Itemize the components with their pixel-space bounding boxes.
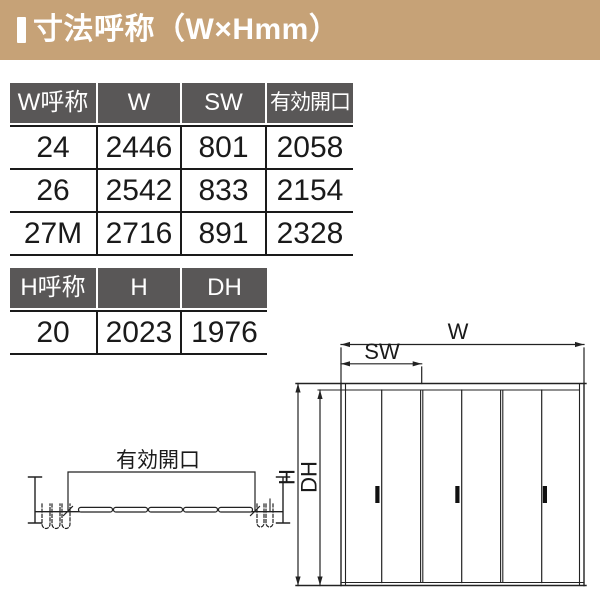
column-header: W [98, 83, 182, 123]
door-handle [375, 486, 379, 503]
table-cell: 2542 [98, 170, 182, 211]
table-row: 26 2542 833 2154 [10, 168, 353, 211]
sw-dimension-label: SW [364, 339, 400, 364]
column-header: SW [182, 83, 267, 123]
w-table-body: 24 2446 801 2058 26 2542 833 2154 27M 27… [10, 125, 353, 256]
effective-opening-label: 有効開口 [116, 449, 200, 472]
table-row: 27M 2716 891 2328 [10, 211, 353, 256]
w-dimension-label: W [448, 319, 469, 344]
panel-pair-joint [501, 390, 503, 583]
page-title: 寸法呼称（W×Hmm） [33, 0, 339, 60]
column-header: 有効開口 [267, 83, 353, 123]
panel-pair-joint [421, 390, 423, 583]
plan-view: 有効開口 [29, 449, 290, 529]
column-header: DH [182, 268, 267, 308]
folded-panels-right [257, 504, 273, 527]
elevation-view: W SW H DH [274, 319, 586, 586]
plan-panel-slats [79, 507, 253, 512]
table-cell: 2058 [267, 127, 353, 168]
table-cell: 2328 [267, 213, 353, 254]
table-cell: 27M [10, 213, 98, 254]
table-cell: 2716 [98, 213, 182, 254]
h-table-header-row: H呼称 H DH [10, 268, 267, 308]
table-cell: 801 [182, 127, 267, 168]
table-cell: 26 [10, 170, 98, 211]
spec-sheet: 寸法呼称（W×Hmm） W呼称 W SW 有効開口 24 2446 801 20… [0, 0, 600, 600]
table-cell: 891 [182, 213, 267, 254]
table-row: 24 2446 801 2058 [10, 125, 353, 168]
plan-left-jamb [29, 477, 42, 523]
table-cell: 2154 [267, 170, 353, 211]
dimension-diagram: 有効開口 W [0, 318, 600, 600]
frame-sides [341, 384, 584, 586]
door-handle [543, 486, 547, 503]
title-bar: 寸法呼称（W×Hmm） [0, 0, 600, 60]
door-handle [455, 486, 459, 503]
table-cell: 2446 [98, 127, 182, 168]
sw-dimension [341, 361, 422, 383]
dh-dimension-label: DH [296, 461, 321, 493]
table-cell: 24 [10, 127, 98, 168]
table-cell: 833 [182, 170, 267, 211]
title-marker-icon [17, 17, 26, 43]
column-header: H呼称 [10, 268, 98, 308]
w-table-header-row: W呼称 W SW 有効開口 [10, 83, 353, 123]
frame-inner-lines [318, 384, 584, 586]
column-header: H [98, 268, 182, 308]
w-dimension-table: W呼称 W SW 有効開口 24 2446 801 2058 26 2542 8… [10, 83, 353, 256]
folded-panels-left [42, 504, 70, 529]
column-header: W呼称 [10, 83, 98, 123]
